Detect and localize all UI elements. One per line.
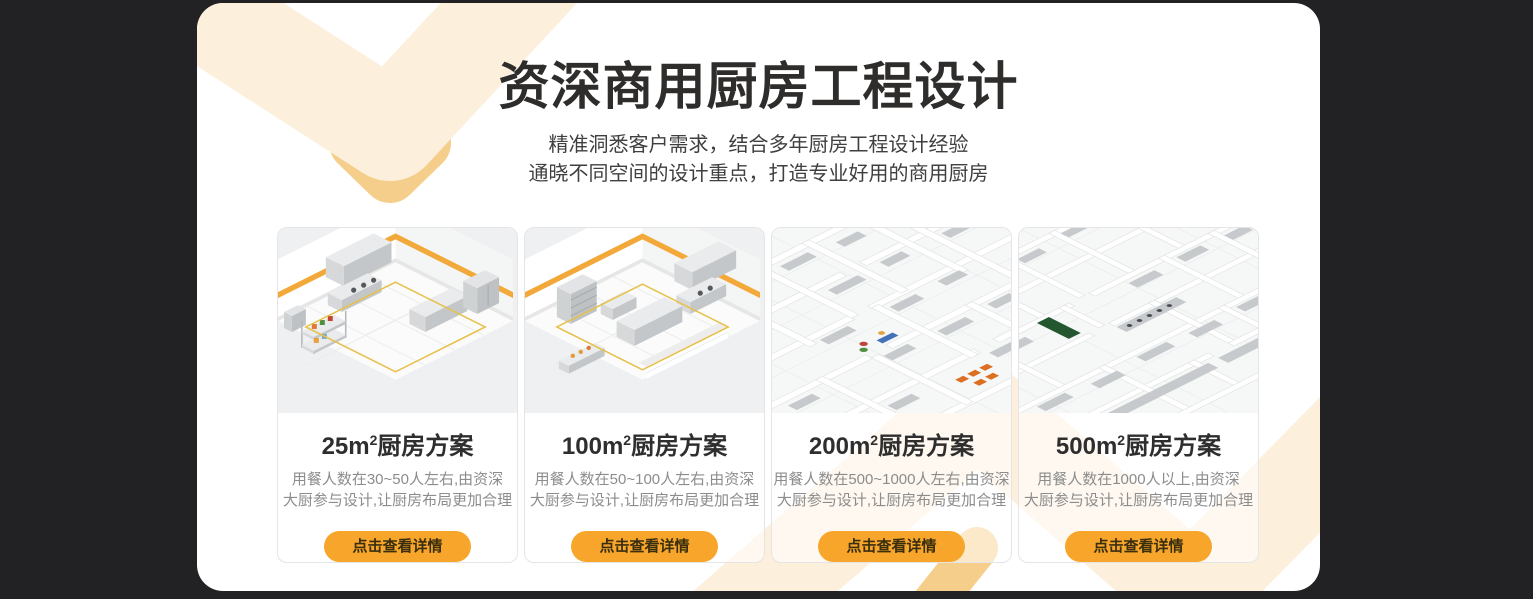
view-details-button-100m2[interactable]: 点击查看详情 — [571, 531, 717, 562]
page-subtitle: 精准洞悉客户需求，结合多年厨房工程设计经验 通晓不同空间的设计重点，打造专业好用… — [197, 131, 1320, 189]
card-desc-line2: 大厨参与设计,让厨房布局更加合理 — [772, 490, 1011, 511]
card-desc-line2: 大厨参与设计,让厨房布局更加合理 — [1019, 490, 1258, 511]
plan-card-100m2: 100m2厨房方案 用餐人数在50~100人左右,由资深 大厨参与设计,让厨房布… — [524, 227, 765, 563]
page-title: 资深商用厨房工程设计 — [197, 58, 1320, 116]
card-desc-line2: 大厨参与设计,让厨房布局更加合理 — [278, 490, 517, 511]
plan-card-25m2: 25m2厨房方案 用餐人数在30~50人左右,由资深 大厨参与设计,让厨房布局更… — [277, 227, 518, 563]
decor-gold-sliver-bottom-right — [1287, 558, 1320, 591]
kitchen-render-500m2 — [1019, 228, 1258, 413]
card-desc-line1: 用餐人数在500~1000人左右,由资深 — [772, 469, 1011, 490]
card-desc-25m2: 用餐人数在30~50人左右,由资深 大厨参与设计,让厨房布局更加合理 — [278, 469, 517, 511]
card-title-area: 500m — [1056, 433, 1117, 460]
kitchen-render-100m2 — [525, 228, 764, 413]
card-title-area: 25m — [322, 433, 370, 460]
card-title-area: 200m — [809, 433, 870, 460]
card-title-rest: 厨房方案 — [1125, 433, 1221, 460]
view-details-button-25m2[interactable]: 点击查看详情 — [324, 531, 470, 562]
kitchen-render-25m2 — [278, 228, 517, 413]
card-title-rest: 厨房方案 — [631, 433, 727, 460]
card-desc-line1: 用餐人数在1000人以上,由资深 — [1019, 469, 1258, 490]
card-title-100m2: 100m2厨房方案 — [525, 426, 764, 461]
card-desc-line2: 大厨参与设计,让厨房布局更加合理 — [525, 490, 764, 511]
view-details-button-200m2[interactable]: 点击查看详情 — [818, 531, 964, 562]
plan-cards-row: 25m2厨房方案 用餐人数在30~50人左右,由资深 大厨参与设计,让厨房布局更… — [277, 227, 1259, 563]
card-desc-200m2: 用餐人数在500~1000人左右,由资深 大厨参与设计,让厨房布局更加合理 — [772, 469, 1011, 511]
subtitle-line-1: 精准洞悉客户需求，结合多年厨房工程设计经验 — [197, 131, 1320, 160]
card-title-sup: 2 — [870, 432, 878, 448]
card-title-sup: 2 — [623, 432, 631, 448]
subtitle-line-2: 通晓不同空间的设计重点，打造专业好用的商用厨房 — [197, 160, 1320, 189]
card-desc-line1: 用餐人数在50~100人左右,由资深 — [525, 469, 764, 490]
card-desc-line1: 用餐人数在30~50人左右,由资深 — [278, 469, 517, 490]
kitchen-render-200m2 — [772, 228, 1011, 413]
card-title-500m2: 500m2厨房方案 — [1019, 426, 1258, 461]
card-title-25m2: 25m2厨房方案 — [278, 426, 517, 461]
card-desc-100m2: 用餐人数在50~100人左右,由资深 大厨参与设计,让厨房布局更加合理 — [525, 469, 764, 511]
card-title-area: 100m — [562, 433, 623, 460]
card-desc-500m2: 用餐人数在1000人以上,由资深 大厨参与设计,让厨房布局更加合理 — [1019, 469, 1258, 511]
plan-card-500m2: 500m2厨房方案 用餐人数在1000人以上,由资深 大厨参与设计,让厨房布局更… — [1018, 227, 1259, 563]
view-details-button-500m2[interactable]: 点击查看详情 — [1065, 531, 1211, 562]
card-title-sup: 2 — [1117, 432, 1125, 448]
plan-card-200m2: 200m2厨房方案 用餐人数在500~1000人左右,由资深 大厨参与设计,让厨… — [771, 227, 1012, 563]
card-title-200m2: 200m2厨房方案 — [772, 426, 1011, 461]
card-title-rest: 厨房方案 — [377, 433, 473, 460]
main-panel: 资深商用厨房工程设计 精准洞悉客户需求，结合多年厨房工程设计经验 通晓不同空间的… — [197, 3, 1320, 591]
card-title-rest: 厨房方案 — [878, 433, 974, 460]
